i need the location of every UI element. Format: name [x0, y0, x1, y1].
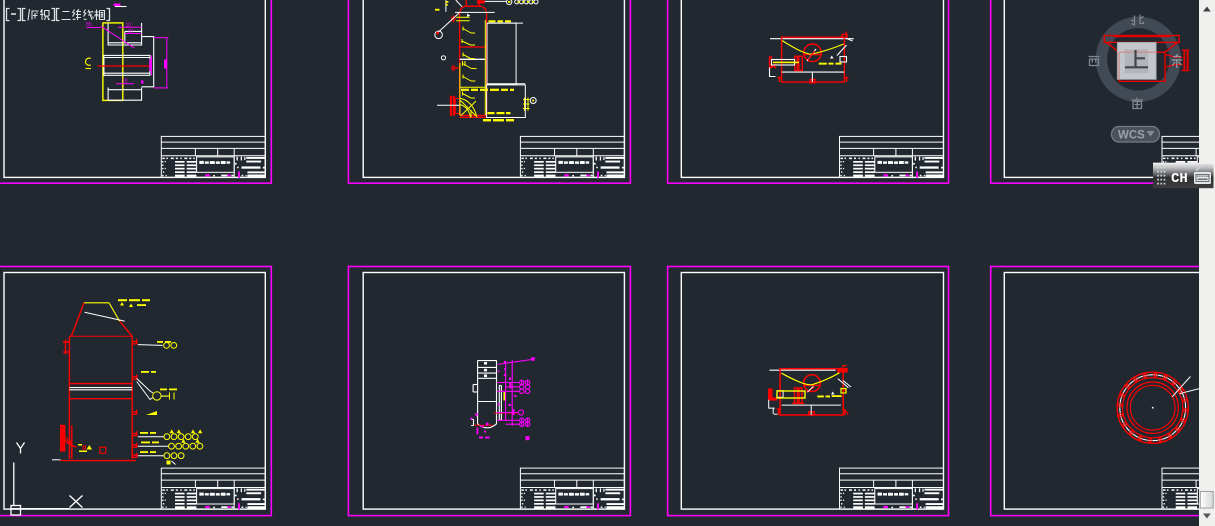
svg-text:10: 10	[128, 29, 134, 35]
svg-text:85: 85	[86, 22, 92, 28]
svg-text:CH: CH	[1171, 171, 1188, 187]
svg-text:WCS: WCS	[1118, 130, 1145, 142]
svg-text:10: 10	[126, 23, 132, 29]
svg-text:10: 10	[122, 79, 128, 85]
